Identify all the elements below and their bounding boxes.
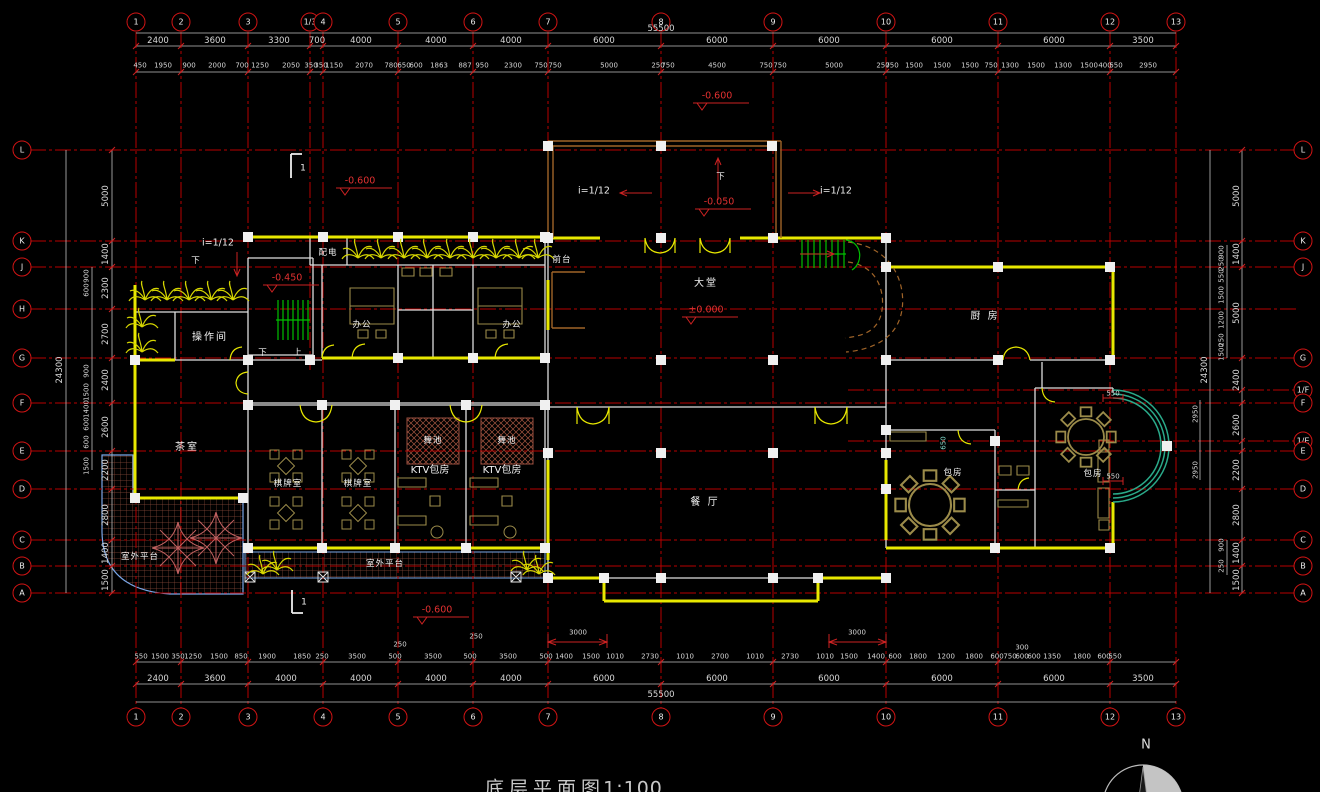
room-label-dance2: 舞池 xyxy=(497,437,516,446)
mahjong-table xyxy=(270,497,302,529)
plant xyxy=(126,333,158,353)
dim-label: 5000 xyxy=(600,63,618,70)
dim-label: 500 xyxy=(539,654,552,661)
columns xyxy=(130,141,1172,583)
dim-label: 2800 xyxy=(102,504,111,526)
dim-label: 6000 xyxy=(1043,675,1065,684)
dim-label: 1500 xyxy=(1080,63,1098,70)
dim-label: 2950 xyxy=(1139,63,1157,70)
dim-label: 550 xyxy=(1106,474,1119,481)
room-label-dance1: 舞池 xyxy=(423,437,442,446)
grid-bubble: 10 xyxy=(877,708,896,727)
plant xyxy=(217,281,249,301)
room-label-office1: 办公 xyxy=(352,321,371,330)
dim-label: 1400 xyxy=(1233,542,1242,564)
dim-label: 550 xyxy=(1108,654,1121,661)
grid-bubble: 1 xyxy=(127,708,146,727)
grid-bubble: B xyxy=(1294,557,1313,576)
drawing-scale: 1:100 xyxy=(603,780,663,792)
dim-label: 3500 xyxy=(499,654,517,661)
room-label-terrace2: 室外平台 xyxy=(366,560,404,569)
dim-label: 4000 xyxy=(350,675,372,684)
dim-label: 2070 xyxy=(355,63,373,70)
dim-label: 1010 xyxy=(816,654,834,661)
dim-label: 1500 xyxy=(961,63,979,70)
door-swings xyxy=(230,238,1055,490)
dim-label: 6000 xyxy=(931,37,953,46)
dim-label: 2200 xyxy=(102,459,111,481)
room-label-chess2: 棋牌室 xyxy=(344,480,373,489)
dim-label: 5000 xyxy=(1233,302,1242,324)
dim-label: 1400 xyxy=(84,400,91,418)
dim-label: 1500 xyxy=(102,569,111,591)
dim-label: 1500 xyxy=(1233,569,1242,591)
dim-label: 4000 xyxy=(350,37,372,46)
dim-label: 1500 xyxy=(905,63,923,70)
grid-bubble: 7 xyxy=(539,13,558,32)
grid-bubble: E xyxy=(13,442,32,461)
grid-bubble: L xyxy=(13,141,32,160)
dim-label: 4000 xyxy=(425,37,447,46)
section-mark-label: 1 xyxy=(301,599,307,608)
room-label-private1: 包房 xyxy=(943,469,962,478)
grid-bubble: B xyxy=(13,557,32,576)
dim-label: 2300 xyxy=(504,63,522,70)
level-marker: -0.450 xyxy=(272,273,303,283)
dim-label: 6000 xyxy=(706,675,728,684)
dimension-ticks xyxy=(109,43,1245,687)
level-marker: ±0.000 xyxy=(688,305,723,315)
grid-bubble: 12 xyxy=(1101,13,1120,32)
dim-label: 780 xyxy=(384,63,397,70)
grid-bubble: 13 xyxy=(1167,708,1186,727)
dim-label: 900 xyxy=(182,63,195,70)
room-label-chess1: 棋牌室 xyxy=(274,480,303,489)
dim-label: 1300 xyxy=(1001,63,1019,70)
dim-label: 2600 xyxy=(1233,414,1242,436)
fan-symbol-2 xyxy=(504,526,516,538)
dim-label: 550 xyxy=(1109,63,1122,70)
room-label-dining: 餐 厅 xyxy=(690,498,719,508)
dim-label: 750 xyxy=(984,63,997,70)
dim-label: 350 xyxy=(171,654,184,661)
dim-label: 6000 xyxy=(1043,37,1065,46)
dim-label: 4000 xyxy=(275,675,297,684)
grid-bubble: 2 xyxy=(172,708,191,727)
room-label-tea: 茶室 xyxy=(175,443,199,453)
slope-label: i=1/12 xyxy=(202,238,234,248)
dim-label: 600 xyxy=(84,283,91,296)
total-dim-bottom: 55500 xyxy=(647,691,674,700)
total-dim-right: 24300 xyxy=(1201,356,1210,383)
dim-label: 600 xyxy=(888,654,901,661)
dim-label: 1350 xyxy=(1043,654,1061,661)
dim-label: 2300 xyxy=(102,277,111,299)
total-dim-left: 24300 xyxy=(56,356,65,383)
level-marker: -0.600 xyxy=(422,605,453,615)
room-label-terrace1: 室外平台 xyxy=(121,553,159,562)
dim-label: 750 xyxy=(773,63,786,70)
level-marker: -0.600 xyxy=(345,176,376,186)
dim-label: 1400 xyxy=(102,243,111,265)
grid-bubble: H xyxy=(13,300,32,319)
grid-bubble: 4 xyxy=(314,13,333,32)
interior-walls xyxy=(133,237,1113,601)
grid-bubble: G xyxy=(13,349,32,368)
grid-bubble: J xyxy=(1294,258,1313,277)
grid-bubble: C xyxy=(1294,531,1313,550)
grid-bubble: G xyxy=(1294,349,1313,368)
dim-label: 3000 xyxy=(569,630,587,637)
dim-label: 1900 xyxy=(258,654,276,661)
grid-bubble: 4 xyxy=(314,708,333,727)
total-dim-top: 55500 xyxy=(647,25,674,34)
dim-label: 250 xyxy=(393,642,406,649)
dim-label: 1010 xyxy=(676,654,694,661)
grid-bubble: F xyxy=(1294,394,1313,413)
grid-bubble: C xyxy=(13,531,32,550)
plant xyxy=(151,281,183,301)
dim-label: 750 xyxy=(885,63,898,70)
dim-label: 700 xyxy=(309,37,325,46)
grid-bubble: 10 xyxy=(877,13,896,32)
grid-bubble: 9 xyxy=(764,13,783,32)
dim-label: 3600 xyxy=(204,37,226,46)
dim-label: 1500 xyxy=(210,654,228,661)
dim-label: 1300 xyxy=(1054,63,1072,70)
dim-label: 500 xyxy=(463,654,476,661)
dim-label: 750 xyxy=(759,63,772,70)
dim-label: 4000 xyxy=(500,675,522,684)
exterior-walls xyxy=(135,237,1113,601)
dim-label: 2700 xyxy=(102,323,111,345)
dim-label: 950 xyxy=(475,63,488,70)
dim-label: 750 xyxy=(548,63,561,70)
dim-label: 5000 xyxy=(1233,185,1242,207)
grid-bubble: 2 xyxy=(172,13,191,32)
dim-label: 5000 xyxy=(825,63,843,70)
dim-label: 900 xyxy=(84,269,91,282)
grid-bubble: K xyxy=(13,232,32,251)
bay-window-arc xyxy=(1113,390,1169,502)
dim-label: 650 xyxy=(941,436,948,449)
dim-label: 1500 xyxy=(1219,286,1226,304)
dim-label: 1250 xyxy=(184,654,202,661)
dim-label: 1200 xyxy=(937,654,955,661)
mahjong-table xyxy=(342,497,374,529)
dim-label: 900 xyxy=(1219,538,1226,551)
room-label-ktv1: KTV包房 xyxy=(411,466,450,476)
level-marker: -0.050 xyxy=(704,197,735,207)
dim-label: 3300 xyxy=(268,37,290,46)
dim-label: 2800 xyxy=(1233,504,1242,526)
grid-bubble: 11 xyxy=(989,13,1008,32)
north-arrow xyxy=(1103,765,1183,792)
dim-label: 3500 xyxy=(424,654,442,661)
dim-label: 1850 xyxy=(293,654,311,661)
floor-plan-canvas: 1231/345678910111213 12345678910111213 L… xyxy=(0,0,1320,792)
room-label-lobby: 大堂 xyxy=(694,279,718,289)
dim-label: 887 xyxy=(458,63,471,70)
dim-label: 250 xyxy=(1219,559,1226,572)
dim-label: 2400 xyxy=(147,675,169,684)
dim-label: 6000 xyxy=(818,675,840,684)
dim-label: 1800 xyxy=(965,654,983,661)
dim-label: 500 xyxy=(388,654,401,661)
room-label-reception: 前台 xyxy=(552,256,571,265)
dim-label: 1500 xyxy=(582,654,600,661)
dim-label: 2730 xyxy=(781,654,799,661)
dim-label: 2950 xyxy=(1193,461,1200,479)
dim-label: 3500 xyxy=(1132,675,1154,684)
dim-label: 750 xyxy=(534,63,547,70)
dim-label: 1800 xyxy=(1073,654,1091,661)
grid-bubble: 9 xyxy=(764,708,783,727)
grid-bubble: 5 xyxy=(389,708,408,727)
dim-label: 1400 xyxy=(102,542,111,564)
dim-label: 1500 xyxy=(151,654,169,661)
dim-label: 4500 xyxy=(708,63,726,70)
dim-label: 1950 xyxy=(154,63,172,70)
dim-label: 2400 xyxy=(1233,369,1242,391)
grid-bubble: 7 xyxy=(539,708,558,727)
grid-bubble: 6 xyxy=(464,13,483,32)
dim-label: 1400 xyxy=(555,654,573,661)
dim-label: 3000 xyxy=(848,630,866,637)
plan-drawing xyxy=(0,0,1320,792)
grid-bubble: 6 xyxy=(464,708,483,727)
stair-note-up: 上 xyxy=(293,349,303,358)
grid-bubble: 12 xyxy=(1101,708,1120,727)
grid-bubble: 8 xyxy=(652,708,671,727)
mahjong-table xyxy=(342,450,374,482)
grid-bubble: 11 xyxy=(989,708,1008,727)
room-label-office2: 办公 xyxy=(502,321,521,330)
dim-label: 3500 xyxy=(348,654,366,661)
dim-label: 3600 xyxy=(204,675,226,684)
dim-label: 4000 xyxy=(425,675,447,684)
grid-bubble: K xyxy=(1294,232,1313,251)
dim-label: 550 xyxy=(1219,269,1226,282)
dim-label: 4000 xyxy=(500,37,522,46)
dim-label: 1010 xyxy=(746,654,764,661)
dim-label: 2400 xyxy=(102,369,111,391)
grid-bubble: 1 xyxy=(127,13,146,32)
drawing-title: 底层平面图 xyxy=(485,780,605,792)
grid-bubble: A xyxy=(1294,584,1313,603)
plant xyxy=(126,308,158,328)
dim-label: 6000 xyxy=(706,37,728,46)
dim-label: 6000 xyxy=(818,37,840,46)
slope-label: i=1/12 xyxy=(820,186,852,196)
grid-bubble: L xyxy=(1294,141,1313,160)
stair-note-down: 下 xyxy=(716,173,726,182)
dim-label: 1500 xyxy=(933,63,951,70)
dim-label: 900 xyxy=(84,364,91,377)
grid-bubble: A xyxy=(13,584,32,603)
dim-label: 1500 xyxy=(84,457,91,475)
dim-label: 600 xyxy=(990,654,1003,661)
room-label-power: 配电 xyxy=(318,249,337,258)
dim-label: 1200 xyxy=(1219,311,1226,329)
dim-label: 600 xyxy=(1027,654,1040,661)
dim-label: 1250 xyxy=(251,63,269,70)
mahjong-table xyxy=(270,450,302,482)
dim-label: 450 xyxy=(133,63,146,70)
dim-label: 600 xyxy=(409,63,422,70)
room-label-ktv2: KTV包房 xyxy=(483,466,522,476)
dim-label: 6000 xyxy=(593,675,615,684)
dim-label: 2000 xyxy=(208,63,226,70)
dim-label: 1500 xyxy=(1027,63,1045,70)
dim-label: 2200 xyxy=(1233,459,1242,481)
stair-note-down: 下 xyxy=(191,257,201,266)
grid-bubble: E xyxy=(1294,442,1313,461)
round-table xyxy=(895,470,964,539)
dim-label: 250 xyxy=(469,634,482,641)
dim-label: 1150 xyxy=(325,63,343,70)
dim-label: 6000 xyxy=(593,37,615,46)
dim-label: 1500 xyxy=(1219,343,1226,361)
dim-label: 2730 xyxy=(641,654,659,661)
dim-label: 600 xyxy=(84,417,91,430)
grid-bubble: D xyxy=(13,480,32,499)
north-label: N xyxy=(1141,739,1151,752)
dim-label: 850 xyxy=(234,654,247,661)
grid-bubble: 3 xyxy=(239,13,258,32)
dim-label: 1400 xyxy=(1233,243,1242,265)
dim-label: 3500 xyxy=(1132,37,1154,46)
slope-label: i=1/12 xyxy=(578,186,610,196)
dim-label: 1400 xyxy=(867,654,885,661)
dim-label: 550 xyxy=(1106,391,1119,398)
dim-label: 2400 xyxy=(147,37,169,46)
level-marker: -0.600 xyxy=(702,91,733,101)
grid-bubble: 5 xyxy=(389,13,408,32)
room-label-kitchen: 厨 房 xyxy=(970,312,999,322)
dim-label: 5000 xyxy=(102,185,111,207)
dim-label: 250 xyxy=(315,654,328,661)
dim-label: 1800 xyxy=(909,654,927,661)
dim-label: 300 xyxy=(1015,645,1028,652)
dim-label: 1010 xyxy=(606,654,624,661)
dim-label: 1863 xyxy=(430,63,448,70)
grid-bubble: F xyxy=(13,394,32,413)
dim-label: 600 xyxy=(84,435,91,448)
section-cut-marks xyxy=(291,154,303,613)
room-label-private2: 包房 xyxy=(1083,470,1102,479)
round-table xyxy=(1056,407,1115,466)
fan-symbol-1 xyxy=(431,526,443,538)
dim-label: 6000 xyxy=(931,675,953,684)
grid-bubble: J xyxy=(13,258,32,277)
dim-label: 2950 xyxy=(1193,405,1200,423)
plant xyxy=(195,281,227,301)
room-label-workroom: 操作间 xyxy=(192,333,228,343)
grid-bubble: 3 xyxy=(239,708,258,727)
plant xyxy=(173,281,205,301)
grid-bubble: 13 xyxy=(1167,13,1186,32)
dim-label: 2050 xyxy=(282,63,300,70)
dim-label: 2700 xyxy=(711,654,729,661)
section-mark-label: 1 xyxy=(300,165,306,174)
dim-label: 1500 xyxy=(840,654,858,661)
grid-lines xyxy=(30,32,1298,708)
dim-label: 2600 xyxy=(102,416,111,438)
stair-note-down: 下 xyxy=(258,349,268,358)
dim-label: 550 xyxy=(134,654,147,661)
dim-label: 750 xyxy=(661,63,674,70)
grid-bubble: D xyxy=(1294,480,1313,499)
dim-label: 1500 xyxy=(84,383,91,401)
dim-label: 700 xyxy=(235,63,248,70)
curved-ramp-dashed xyxy=(845,242,903,352)
